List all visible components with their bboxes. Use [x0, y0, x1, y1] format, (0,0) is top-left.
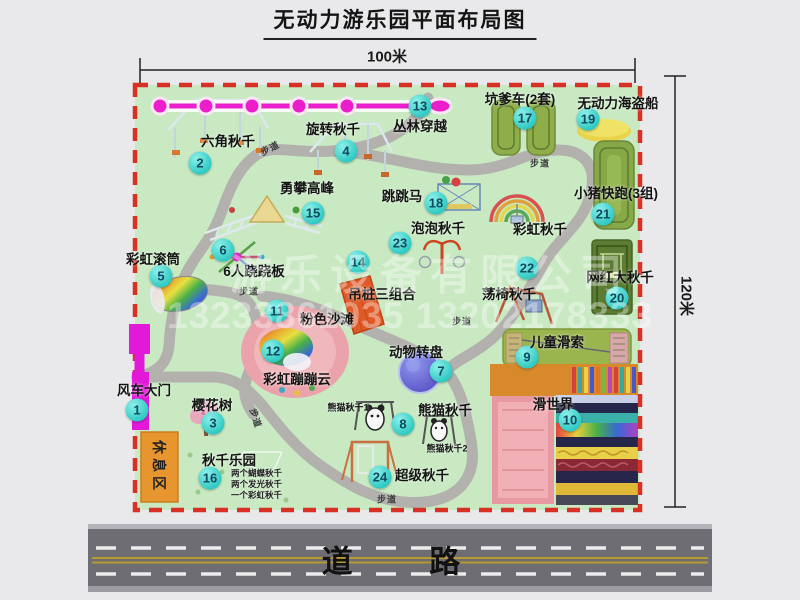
attraction-number-17: 17 [514, 107, 537, 130]
attraction-label-18: 跳跳马 [382, 185, 423, 205]
road-label: 道 路 [322, 537, 495, 582]
attraction-number-15: 15 [302, 202, 325, 225]
slide-world-icon [490, 364, 638, 505]
watermark-phone: 13233861035 13202178333 [167, 295, 653, 337]
attraction-label-3: 樱花树 [192, 394, 233, 414]
attraction-label-24: 超级秋千 [395, 464, 449, 484]
attraction-label-16: 秋千乐园 [202, 449, 256, 469]
attraction-label-13: 丛林穿越 [393, 115, 447, 135]
attraction-label-12: 彩虹蹦蹦云 [263, 368, 331, 388]
attraction-label-15: 勇攀高峰 [280, 177, 334, 197]
playground-layout-map: 无动力游乐园平面布局图 100米 120米 1 风车大门 2 六角秋千 3 樱花… [0, 0, 800, 600]
attraction-label-8: 熊猫秋千 [418, 399, 472, 419]
rainbow-swing-label: 彩虹秋千 [513, 218, 567, 238]
attraction-label-4: 旋转秋千 [306, 118, 360, 138]
attraction-label-19: 无动力海盗船 [578, 92, 659, 112]
attraction-number-4: 4 [335, 140, 358, 163]
watermark-company: 游乐设备有限公司 [230, 242, 630, 303]
walkway-label: 步道 [377, 493, 397, 506]
attraction-number-1: 1 [126, 399, 149, 422]
panda-swing-1-label: 熊猫秋千1 [327, 401, 368, 414]
attraction-number-24: 24 [369, 466, 392, 489]
attraction-number-16: 16 [199, 467, 222, 490]
attraction-label-2: 六角秋千 [201, 130, 255, 150]
attraction-label-1: 风车大门 [117, 379, 171, 399]
zipline-icon [152, 98, 451, 114]
height-dimension-label: 120米 [677, 276, 698, 316]
walkway-label: 步道 [530, 157, 550, 170]
swing-park-sub-3: 一个彩虹秋千 [231, 489, 282, 501]
attraction-label-7: 动物转盘 [389, 341, 443, 361]
attraction-number-18: 18 [425, 192, 448, 215]
attraction-number-7: 7 [430, 360, 453, 383]
attraction-label-5: 彩虹滚筒 [126, 248, 180, 268]
attraction-number-21: 21 [592, 203, 615, 226]
page-title: 无动力游乐园平面布局图 [264, 4, 537, 40]
attraction-label-10: 滑世界 [533, 393, 574, 413]
attraction-number-2: 2 [189, 152, 212, 175]
width-dimension-label: 100米 [367, 46, 407, 67]
attraction-number-12: 12 [262, 340, 285, 363]
attraction-number-8: 8 [392, 413, 415, 436]
panda-swing-2-label: 熊猫秋千2 [426, 442, 467, 455]
attraction-label-21: 小猪快跑(3组) [574, 182, 658, 202]
attraction-number-3: 3 [202, 412, 225, 435]
attraction-label-23: 泡泡秋千 [411, 217, 465, 237]
attraction-label-17: 坑爹车(2套) [485, 88, 556, 108]
rest-area-label: 休息区 [149, 440, 169, 494]
